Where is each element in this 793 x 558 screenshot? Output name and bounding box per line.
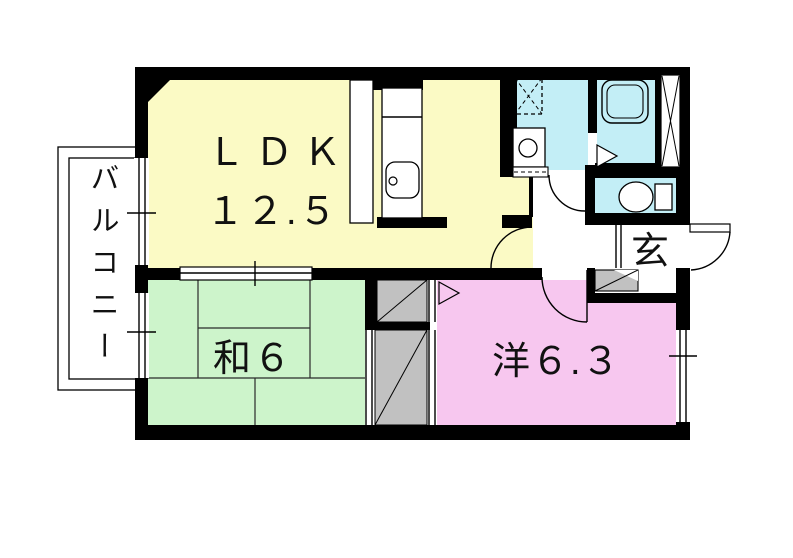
room-ldk (148, 80, 533, 268)
balcony-label: バルコニー (86, 163, 118, 373)
pipe-space (661, 75, 680, 167)
washroom-door (513, 167, 548, 177)
closet-western (377, 280, 427, 322)
ldk-label: ＬＤＫ (207, 132, 351, 174)
western-room-label: 洋６.３ (492, 341, 621, 383)
floor-plan: ＬＤＫ １２.５ 和６ 洋６.３ 玄 バルコニー (0, 0, 793, 558)
floor-plan-page: ＬＤＫ １２.５ 和６ 洋６.３ 玄 バルコニー (0, 0, 793, 558)
entrance-step (595, 270, 638, 291)
entrance-label: 玄 (631, 231, 669, 273)
closet-japanese (375, 330, 427, 425)
japanese-room-label: 和６ (213, 338, 293, 380)
wash-basin (513, 128, 545, 167)
ldk-area-label: １２.５ (206, 191, 339, 233)
kitchen-counter (350, 80, 422, 223)
refrigerator-space (350, 80, 373, 223)
toilet (619, 182, 672, 212)
faucet-icon (389, 177, 397, 185)
